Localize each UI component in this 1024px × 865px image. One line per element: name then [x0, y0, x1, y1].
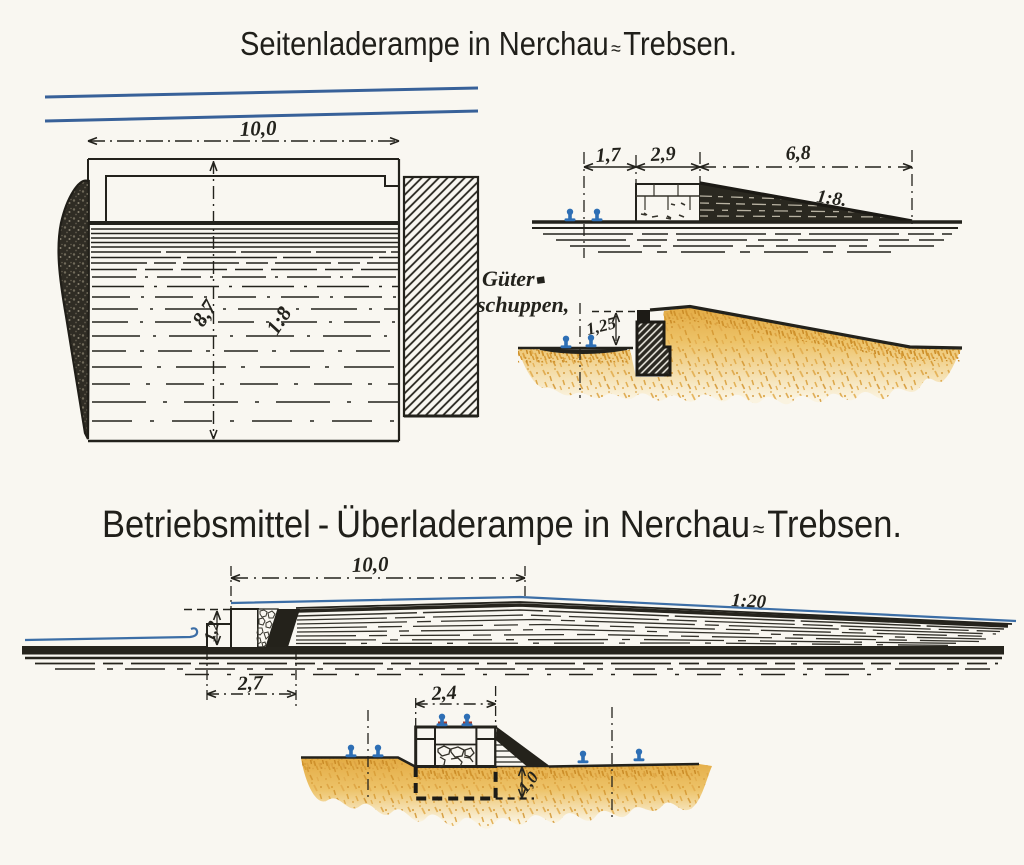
- svg-text:2,7: 2,7: [236, 672, 264, 695]
- svg-text:2,4: 2,4: [430, 682, 457, 705]
- svg-text:6,8: 6,8: [785, 142, 811, 165]
- svg-text:2,9: 2,9: [649, 143, 676, 166]
- svg-text:10,0: 10,0: [239, 116, 277, 141]
- svg-text:1:8.: 1:8.: [815, 186, 848, 211]
- svg-text:Güter: Güter: [482, 266, 535, 291]
- svg-text:Betriebsmittel - Überladerampe: Betriebsmittel - Überladerampe in Nercha…: [102, 504, 902, 546]
- svg-text:Seitenladerampe in Nerchau ≈ T: Seitenladerampe in Nerchau ≈ Trebsen.: [240, 25, 737, 62]
- svg-text:schuppen,: schuppen,: [476, 292, 569, 317]
- svg-text:10,0: 10,0: [351, 552, 389, 577]
- svg-text:1,7: 1,7: [595, 144, 622, 167]
- svg-text:1:20: 1:20: [731, 590, 767, 613]
